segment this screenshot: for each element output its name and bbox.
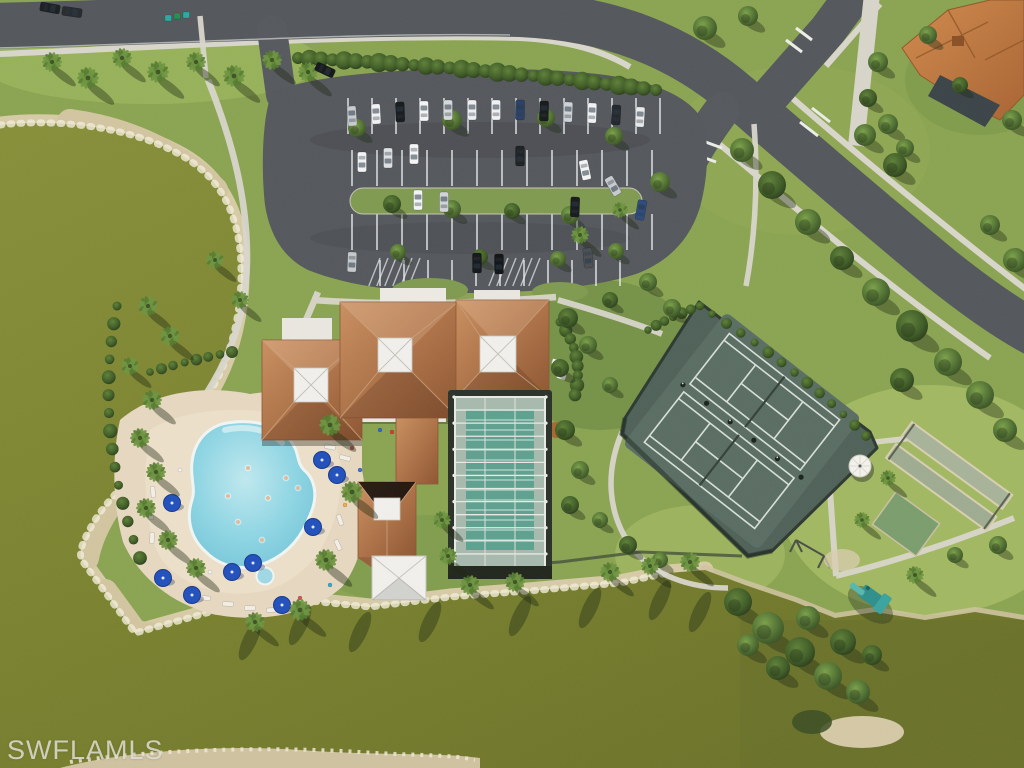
watermark: SWFLAMLS — [7, 735, 164, 766]
aerial-photo-stage: SWFLAMLS — [0, 0, 1024, 768]
photo-grain — [0, 0, 1024, 768]
aerial-photo — [0, 0, 1024, 768]
